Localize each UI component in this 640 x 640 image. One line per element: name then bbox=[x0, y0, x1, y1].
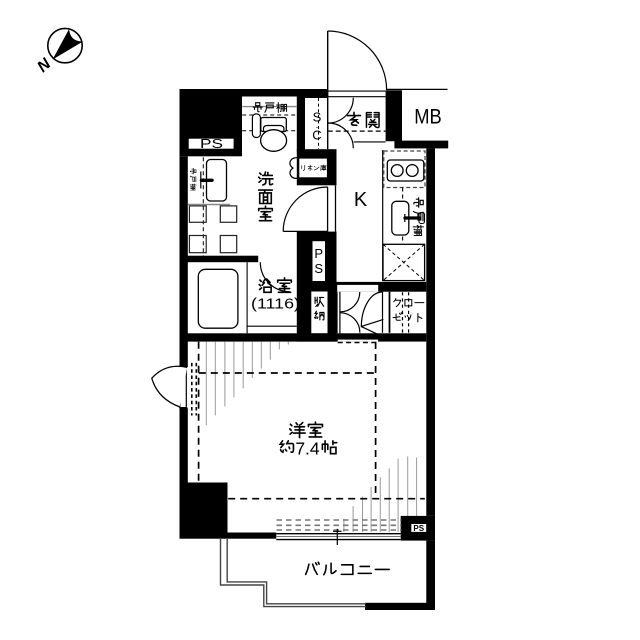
svg-text:7.4: 7.4 bbox=[295, 439, 320, 459]
svg-text:(1116): (1116) bbox=[251, 297, 300, 313]
svg-text:C: C bbox=[312, 128, 321, 143]
svg-text:P: P bbox=[314, 246, 323, 261]
svg-text:PS: PS bbox=[413, 524, 424, 533]
svg-text:S: S bbox=[314, 261, 323, 276]
svg-text:K: K bbox=[354, 189, 368, 211]
svg-text:PS: PS bbox=[200, 136, 223, 151]
svg-text:MB: MB bbox=[414, 106, 442, 129]
